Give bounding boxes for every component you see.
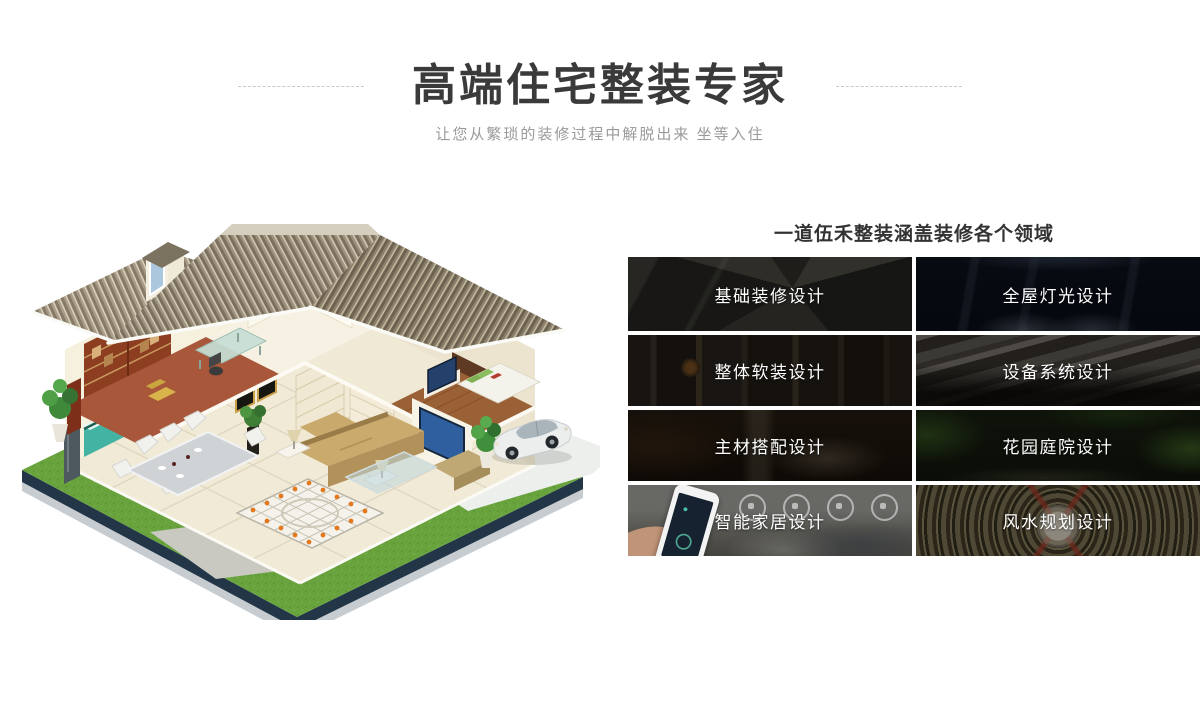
service-tile-label: 基础装修设计 (628, 257, 912, 331)
service-tile-main-materials[interactable]: 主材搭配设计 (628, 410, 912, 481)
services-grid: 基础装修设计 全屋灯光设计 整体软装设计 设备系统设计 主材搭配设计 花园庭院设… (628, 257, 1200, 556)
service-tile-label: 全屋灯光设计 (916, 257, 1200, 331)
service-tile-garden-courtyard[interactable]: 花园庭院设计 (916, 410, 1200, 481)
service-tile-label: 主材搭配设计 (628, 410, 912, 481)
service-tile-soft-furnishing[interactable]: 整体软装设计 (628, 335, 912, 406)
page-title: 高端住宅整装专家 (412, 62, 788, 110)
isometric-house-illustration (0, 180, 620, 620)
page-subtitle: 让您从繁琐的装修过程中解脱出来 坐等入住 (0, 123, 1200, 144)
service-tile-lighting-design[interactable]: 全屋灯光设计 (916, 257, 1200, 331)
service-tile-equipment-systems[interactable]: 设备系统设计 (916, 335, 1200, 406)
service-tile-label: 风水规划设计 (916, 485, 1200, 556)
service-tile-fengshui-planning[interactable]: 风水规划设计 (916, 485, 1200, 556)
service-tile-smart-home[interactable]: 智能家居设计 (628, 485, 912, 556)
page-header: 高端住宅整装专家 让您从繁琐的装修过程中解脱出来 坐等入住 (0, 0, 1200, 144)
service-tile-label: 智能家居设计 (628, 485, 912, 556)
roof-flat-top (220, 224, 380, 235)
right-dashed-divider (836, 86, 962, 87)
title-row: 高端住宅整装专家 (0, 62, 1200, 110)
left-dashed-divider (238, 86, 364, 87)
service-tile-basic-renovation[interactable]: 基础装修设计 (628, 257, 912, 331)
service-tile-label: 设备系统设计 (916, 335, 1200, 406)
service-tile-label: 整体软装设计 (628, 335, 912, 406)
services-heading: 一道伍禾整装涵盖装修各个领域 (628, 219, 1200, 246)
service-tile-label: 花园庭院设计 (916, 410, 1200, 481)
